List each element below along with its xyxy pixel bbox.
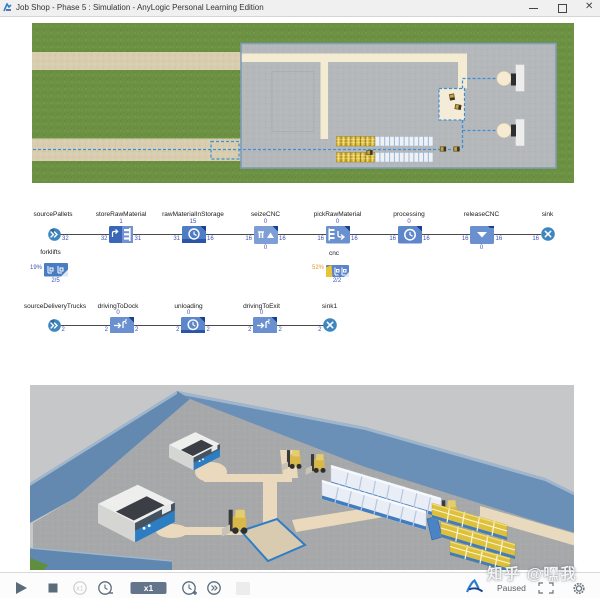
svg-text:x1: x1: [76, 586, 84, 593]
svg-text:x1: x1: [144, 583, 154, 593]
svg-text:Paused: Paused: [497, 583, 526, 593]
